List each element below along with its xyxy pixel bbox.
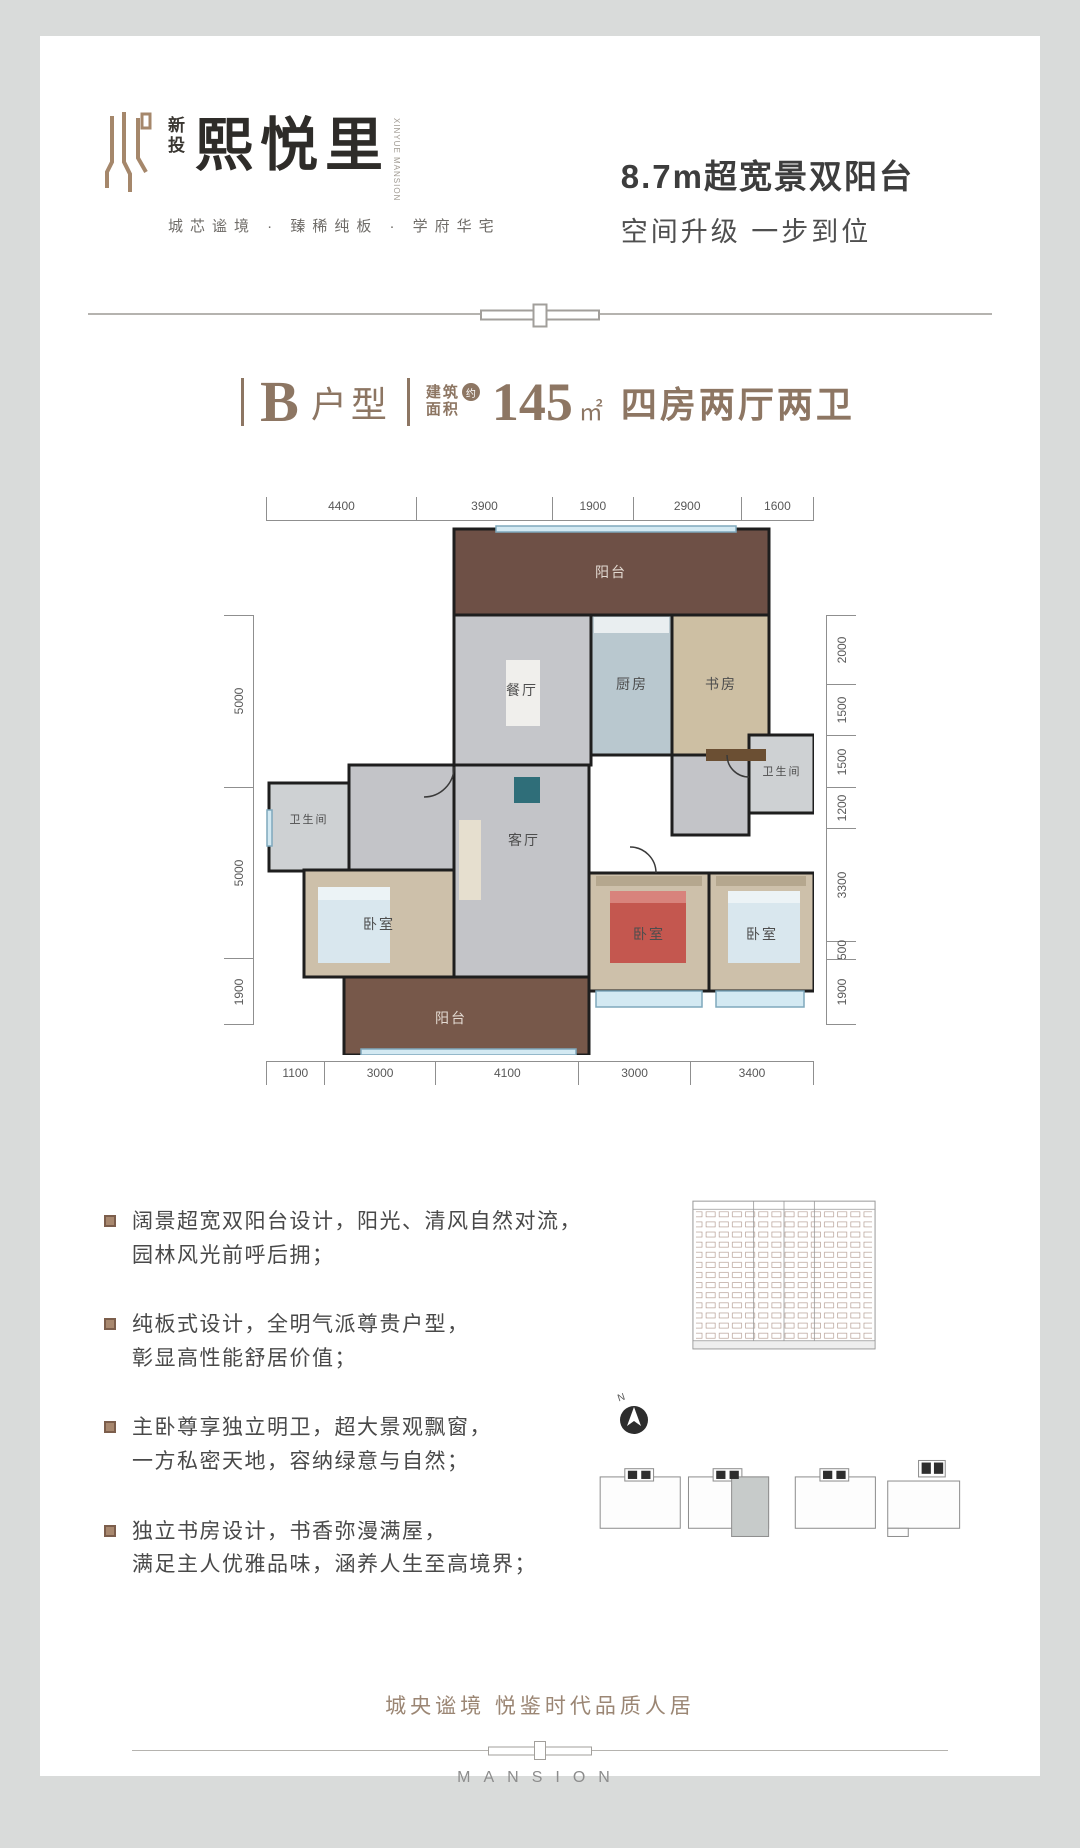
unit-title-bar: B 户型 建筑 面积 约 145 ㎡ 四房两厅两卫 [40,373,1040,431]
features-section: 阔景超宽双阳台设计，阳光、清风自然对流， 园林风光前呼后拥； 纯板式设计，全明气… [40,1189,1040,1618]
feature-line: 主卧尊享独立明卫，超大景观飘窗， [132,1411,492,1445]
floorplan-drawing: 阳台 餐厅 厨房 书房 卫生间 卫生间 客厅 卧室 卧室 卧室 阳台 [266,525,814,1055]
dim-segment: 1500 [827,684,856,736]
bullet-square-icon [104,1215,116,1227]
title-bar-rule [241,378,244,426]
baywindow-bed-right [716,991,804,1007]
siteplan-block [795,1477,875,1528]
dim-value: 500 [835,940,849,960]
kitchen-counter [594,617,669,633]
siteplan-block [600,1477,680,1528]
sofa [459,820,481,900]
features-list: 阔景超宽双阳台设计，阳光、清风自然对流， 园林风光前呼后拥； 纯板式设计，全明气… [104,1189,584,1618]
dim-value: 1900 [232,978,246,1005]
hall-right [672,755,749,835]
floorplan-section: 5000 5000 1900 4400 3900 1900 2900 1600 [40,497,1040,1085]
siteplan-key-drawing [594,1450,974,1548]
header-divider [88,313,992,315]
unit-word: 户型 [311,376,391,428]
area-label-top: 建筑 [426,385,460,402]
label-bed-right: 卧室 [746,926,778,942]
divider-ornament-icon [480,310,600,321]
footer: 城央谧境 悦鉴时代品质人居 MANSION [40,1690,1040,1787]
dim-value: 1900 [835,979,849,1006]
dim-segment: 4400 [266,497,417,521]
approx-badge: 约 [462,383,480,401]
label-bed-left: 卧室 [363,916,395,932]
window-bath-left [267,810,272,846]
rooms-count-text: 四房两厅两卫 [621,376,855,428]
feature-line: 一方私密天地，容纳绿意与自然； [132,1445,492,1479]
label-living: 客厅 [508,832,540,848]
dim-segment: 1900 [553,497,634,521]
logo-name: 熙悦里 [195,110,390,183]
feature-item: 阔景超宽双阳台设计，阳光、清风自然对流， 园林风光前呼后拥； [104,1205,584,1272]
feature-text: 阔景超宽双阳台设计，阳光、清风自然对流， 园林风光前呼后拥； [132,1205,582,1272]
bookshelf [706,749,766,761]
dimension-chain-left: 5000 5000 1900 [224,615,254,1025]
dim-segment: 1500 [827,735,856,787]
footer-brand-en: MANSION [40,1769,1040,1787]
label-balcony-top: 阳台 [595,564,627,580]
dim-segment: 1100 [266,1061,325,1085]
dim-segment: 1200 [827,787,856,829]
footer-slogan: 城央谧境 悦鉴时代品质人居 [40,1690,1040,1720]
dim-segment: 3000 [325,1061,437,1085]
dim-segment: 1600 [742,497,814,521]
dim-value: 1500 [835,748,849,775]
wardrobe-mid [596,876,702,886]
area-label-bottom: 面积 [426,402,460,419]
logo-subname: 新 投 [168,116,185,155]
floorplan-center: 4400 3900 1900 2900 1600 [266,497,814,1085]
bed-right-pillow [728,891,800,903]
label-dining: 餐厅 [506,682,538,698]
brand-logo-block: 新 投 熙悦里 XINYUE MANSION 城芯谧境 · 臻稀纯板 · 学府华… [102,110,501,236]
graphics-column: N [584,1189,984,1618]
feature-line: 满足主人优雅品味，涵养人生至高境界； [132,1548,537,1582]
bullet-square-icon [104,1525,116,1537]
north-compass-icon: N [612,1389,656,1439]
dim-segment: 4100 [436,1061,579,1085]
label-bath-right: 卫生间 [763,764,802,778]
feature-item: 独立书房设计，书香弥漫满屋， 满足主人优雅品味，涵养人生至高境界； [104,1515,584,1582]
label-study: 书房 [705,676,737,692]
dim-segment: 3400 [691,1061,814,1085]
window-balcony-bottom [361,1049,576,1055]
window-top [496,526,736,532]
dim-value: 1500 [835,697,849,724]
unit-letter: B [260,373,299,431]
baywindow-bed-mid [596,991,702,1007]
dim-segment: 2900 [634,497,742,521]
wardrobe-right [716,876,806,886]
promo-block: 8.7m超宽景双阳台 空间升级 一步到位 [621,150,914,249]
building-elevation-drawing [676,1189,892,1361]
dimension-chain-top: 4400 3900 1900 2900 1600 [266,497,814,521]
brand-mark-icon [102,110,154,196]
feature-text: 主卧尊享独立明卫，超大景观飘窗， 一方私密天地，容纳绿意与自然； [132,1411,492,1478]
area-unit: ㎡ [579,392,603,427]
logo-side-text: XINYUE MANSION [392,118,401,201]
footer-divider [132,1750,948,1751]
brand-tagline: 城芯谧境 · 臻稀纯板 · 学府华宅 [168,215,501,236]
door-bed-mid [630,847,656,873]
feature-item: 纯板式设计，全明气派尊贵户型， 彰显高性能舒居价值； [104,1308,584,1375]
flyer-page: 新 投 熙悦里 XINYUE MANSION 城芯谧境 · 臻稀纯板 · 学府华… [40,36,1040,1776]
dim-segment: 1900 [827,959,856,1025]
dim-segment: 500 [827,941,856,959]
room-bath-left [269,783,349,871]
bullet-square-icon [104,1318,116,1330]
label-bed-mid: 卧室 [633,926,665,942]
bed-left-pillow [318,887,390,900]
label-bath-left: 卫生间 [290,812,329,826]
logo-subname-char2: 投 [168,136,185,156]
hall-left [349,765,454,870]
siteplan-block [888,1481,960,1528]
dim-value: 5000 [232,860,246,887]
dim-value: 3300 [835,872,849,899]
promo-subline: 空间升级 一步到位 [621,210,914,249]
promo-headline: 8.7m超宽景双阳台 [621,150,914,198]
area-value: 145 [492,375,573,429]
divider-ornament-icon [488,1746,592,1755]
feature-text: 独立书房设计，书香弥漫满屋， 满足主人优雅品味，涵养人生至高境界； [132,1515,537,1582]
logo-subname-char1: 新 [168,116,185,136]
dim-segment: 5000 [224,787,253,959]
label-kitchen: 厨房 [616,676,648,692]
room-outlines [269,529,814,1055]
area-label: 建筑 面积 [426,385,460,420]
dim-value: 2000 [835,636,849,663]
compass: N [612,1389,656,1444]
bullet-square-icon [104,1421,116,1433]
feature-line: 园林风光前呼后拥； [132,1239,582,1273]
title-bar-rule [407,378,410,426]
feature-line: 阔景超宽双阳台设计，阳光、清风自然对流， [132,1205,582,1239]
label-balcony-bottom: 阳台 [435,1010,467,1026]
feature-line: 彰显高性能舒居价值； [132,1342,470,1376]
dim-value: 1200 [835,795,849,822]
logo-row: 新 投 熙悦里 XINYUE MANSION [102,110,501,201]
dim-segment: 5000 [224,615,253,787]
dim-segment: 2000 [827,615,856,684]
siteplan-highlighted-unit [732,1477,769,1537]
dim-segment: 1900 [224,958,253,1025]
feature-item: 主卧尊享独立明卫，超大景观飘窗， 一方私密天地，容纳绿意与自然； [104,1411,584,1478]
feature-text: 纯板式设计，全明气派尊贵户型， 彰显高性能舒居价值； [132,1308,470,1375]
dim-segment: 3000 [579,1061,691,1085]
dimension-chain-right: 2000 1500 1500 1200 3300 500 1900 [826,615,856,1025]
dim-segment: 3900 [417,497,553,521]
dim-value: 5000 [232,688,246,715]
feature-line: 纯板式设计，全明气派尊贵户型， [132,1308,470,1342]
compass-north-label: N [616,1392,626,1405]
dimension-chain-bottom: 1100 3000 4100 3000 3400 [266,1061,814,1085]
feature-line: 独立书房设计，书香弥漫满屋， [132,1515,537,1549]
dim-segment: 3300 [827,828,856,940]
header: 新 投 熙悦里 XINYUE MANSION 城芯谧境 · 臻稀纯板 · 学府华… [40,36,1040,249]
armchair [514,777,540,803]
bed-mid-pillow [610,891,686,903]
